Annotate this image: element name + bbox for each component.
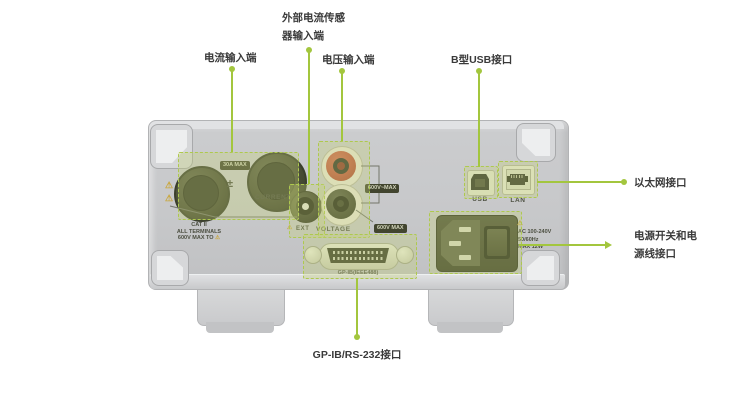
highlight-power [429, 211, 522, 274]
gpib-callout-label: GP-IB/RS-232接口 [305, 346, 409, 364]
ethernet-callout-line [537, 181, 623, 183]
current-callout-line [231, 71, 233, 152]
voltage-bracket-badge: 600V~MAX [365, 184, 399, 193]
usb-callout-label: B型USB接口 [451, 51, 512, 69]
voltage-max-badge: 600V MAX [374, 224, 407, 233]
voltage-callout-line [341, 73, 343, 141]
current-callout-label: 电流输入端 [204, 49, 257, 67]
gpib-callout-line [356, 278, 358, 335]
ethernet-callout-label: 以太网接口 [634, 174, 687, 192]
power-callout-line [519, 244, 606, 246]
power-callout-arrow [605, 241, 612, 249]
rear-panel-diagram: ⚠ ⚠ 30A MAX ± CURRENT CAT II ALL TERMINA… [0, 0, 749, 410]
highlight-current-terminals [178, 152, 299, 220]
highlight-gpib [303, 234, 417, 279]
highlight-lan-port [498, 161, 538, 198]
lan-label: LAN [505, 197, 531, 204]
highlight-voltage-terminals [318, 141, 370, 238]
usb-callout-line [478, 73, 480, 167]
gpib-callout-dot [354, 334, 360, 340]
power-rating-text: AC 100-240V 50/60Hz MAX 12W [518, 229, 551, 252]
ethernet-callout-dot [621, 179, 627, 185]
sensor-callout-label: 外部电流传感 器输入端 [282, 9, 345, 45]
power-callout-label: 电源开关和电 源线接口 [634, 227, 697, 263]
highlight-usb-port [464, 166, 498, 199]
sensor-callout-line [308, 52, 310, 184]
voltage-callout-label: 电压输入端 [322, 51, 375, 69]
